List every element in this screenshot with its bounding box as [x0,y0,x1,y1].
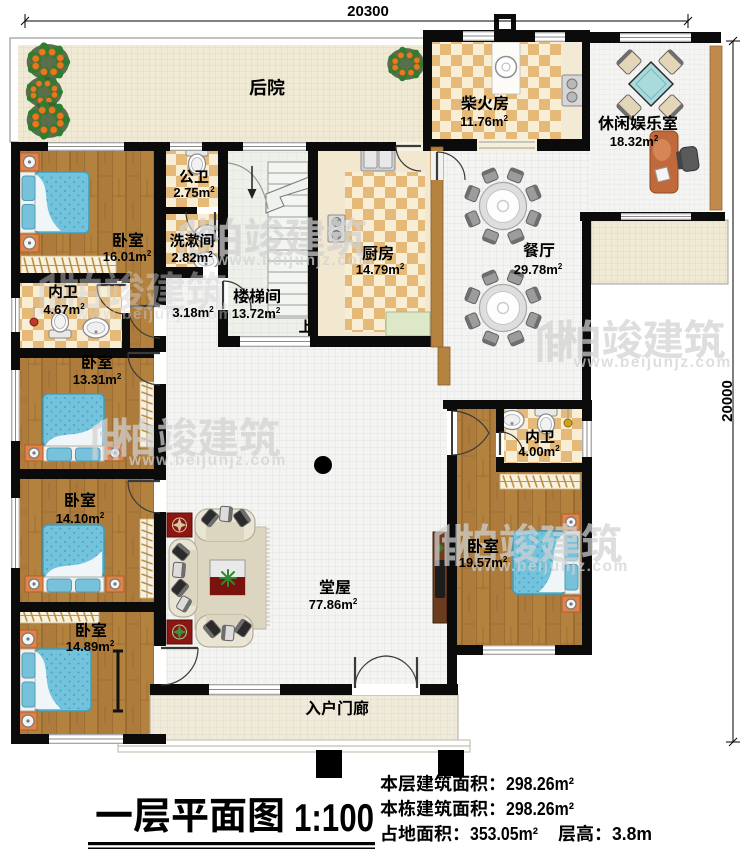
svg-text:16.01m2: 16.01m2 [103,249,152,264]
svg-text:298.26m²: 298.26m² [506,774,574,794]
svg-text:3.18m2: 3.18m2 [172,305,214,320]
svg-text:18.32m2: 18.32m2 [610,134,659,149]
svg-text:www.beijunjz.com: www.beijunjz.com [215,252,374,269]
svg-text:www.beijunjz.com: www.beijunjz.com [573,354,732,371]
svg-text:11.76m2: 11.76m2 [460,114,508,129]
svg-text:www.beijunjz.com: www.beijunjz.com [128,452,287,469]
svg-text:3.8m: 3.8m [612,824,652,844]
svg-text:2.75m2: 2.75m2 [173,185,215,200]
svg-text:4.00m2: 4.00m2 [518,444,560,459]
svg-text:14.89m2: 14.89m2 [66,639,115,654]
svg-text:353.05m²: 353.05m² [470,824,538,844]
svg-text:1:100: 1:100 [294,797,374,840]
svg-text:14.79m2: 14.79m2 [356,262,405,277]
svg-text:19.57m2: 19.57m2 [459,555,508,570]
svg-text:20000: 20000 [719,380,736,422]
svg-text:77.86m2: 77.86m2 [309,597,358,612]
svg-text:29.78m2: 29.78m2 [514,262,563,277]
svg-text:2.82m2: 2.82m2 [171,250,213,265]
svg-text:4.67m2: 4.67m2 [43,302,85,317]
svg-text:20300: 20300 [347,3,389,20]
svg-text:13.31m2: 13.31m2 [73,372,122,387]
svg-text:298.26m²: 298.26m² [506,799,574,819]
svg-text:14.10m2: 14.10m2 [56,511,105,526]
svg-text:13.72m2: 13.72m2 [232,306,281,321]
